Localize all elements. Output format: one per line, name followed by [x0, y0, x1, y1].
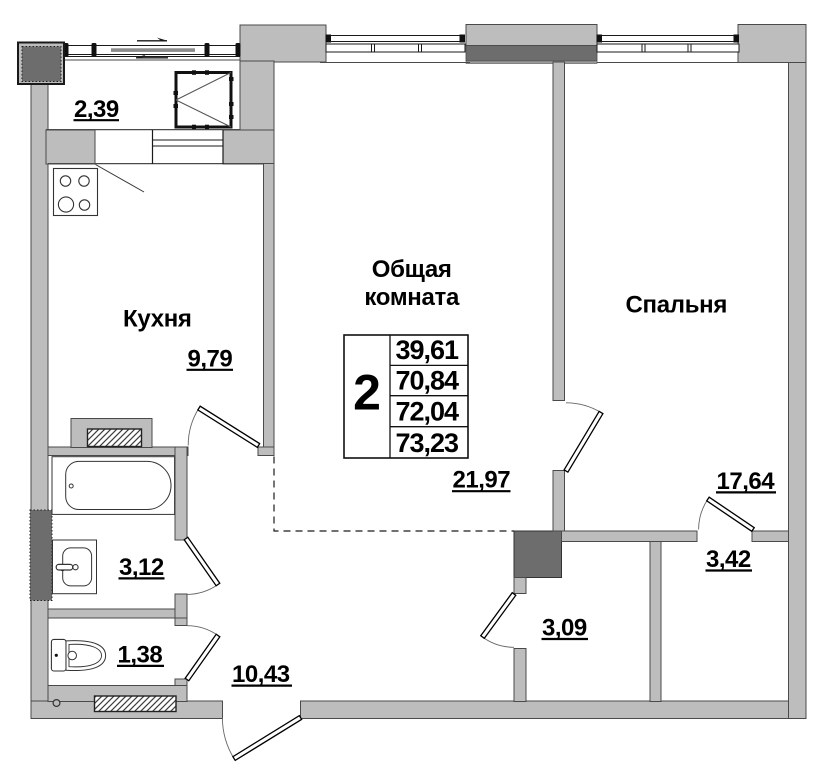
svg-text:3,12: 3,12: [119, 554, 164, 581]
svg-text:Спальня: Спальня: [626, 292, 728, 319]
svg-text:Общая: Общая: [372, 256, 452, 283]
svg-text:3,42: 3,42: [706, 546, 751, 573]
svg-text:Кухня: Кухня: [123, 306, 192, 333]
svg-text:17,64: 17,64: [717, 468, 776, 495]
svg-text:10,43: 10,43: [232, 661, 290, 688]
svg-text:73,23: 73,23: [396, 428, 460, 458]
svg-text:2: 2: [353, 365, 381, 421]
svg-text:2,39: 2,39: [74, 96, 119, 123]
svg-text:9,79: 9,79: [188, 346, 233, 373]
svg-text:1,38: 1,38: [118, 642, 163, 669]
svg-text:комната: комната: [364, 284, 460, 311]
svg-text:21,97: 21,97: [453, 467, 511, 494]
svg-text:39,61: 39,61: [396, 335, 460, 365]
svg-text:72,04: 72,04: [396, 397, 460, 427]
svg-text:70,84: 70,84: [396, 366, 460, 396]
svg-text:3,09: 3,09: [542, 615, 587, 642]
